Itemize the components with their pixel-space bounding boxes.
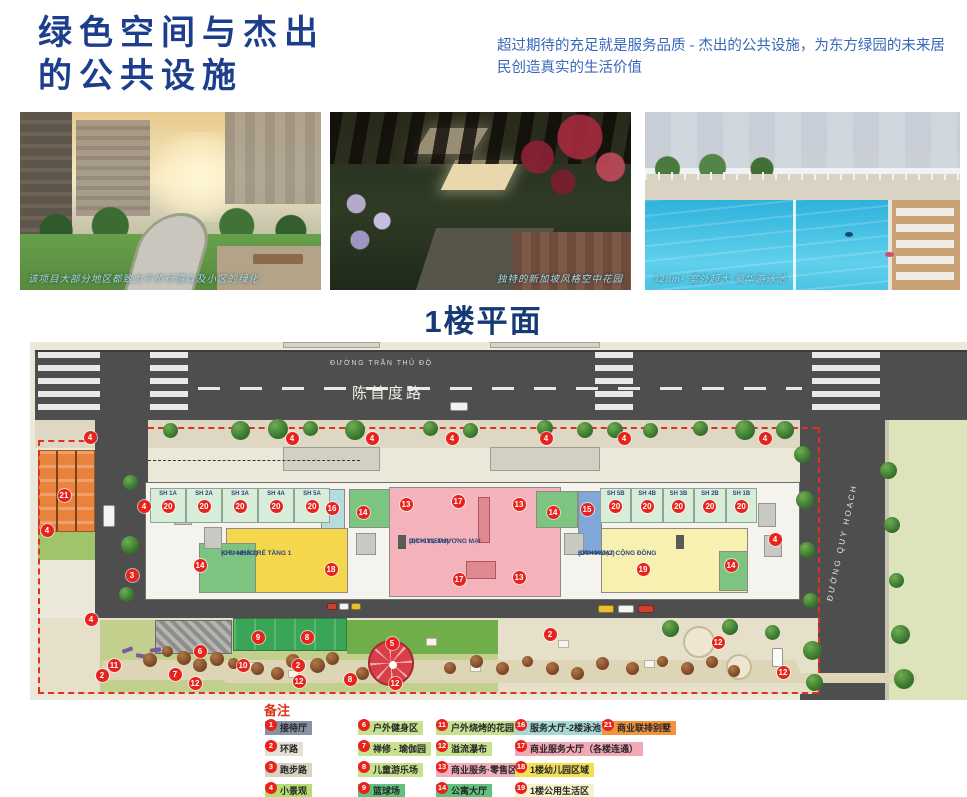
tree xyxy=(794,446,811,463)
legend-item-number: 6 xyxy=(358,719,370,731)
children-playground xyxy=(347,620,498,654)
legend-item-number: 21 xyxy=(602,719,614,731)
legend-item-label: 服务大厅-2楼泳池 xyxy=(515,721,606,735)
tree xyxy=(193,658,207,672)
plan-marker: 5 xyxy=(386,637,399,650)
plan-marker: 8 xyxy=(344,673,357,686)
tree xyxy=(626,662,639,675)
car xyxy=(450,402,468,411)
tree xyxy=(163,423,178,438)
photo2-bougainvillea xyxy=(461,112,631,212)
tree xyxy=(884,517,900,533)
car xyxy=(327,603,337,610)
plan-marker: 10 xyxy=(237,659,250,672)
photo-swimming-pool: 328m² 室外超大 豪华游泳池 xyxy=(645,112,960,290)
legend-item: 3跑步路 xyxy=(265,760,356,774)
car xyxy=(103,505,115,527)
floorplan-title: 1楼平面 xyxy=(0,296,967,341)
plan-marker: 4 xyxy=(618,432,631,445)
car xyxy=(598,605,614,613)
paving-square xyxy=(558,640,569,648)
tree xyxy=(706,656,718,668)
plan-marker: 4 xyxy=(759,432,772,445)
tree xyxy=(662,620,679,637)
tree xyxy=(735,420,755,440)
plan-marker: 17 xyxy=(452,495,465,508)
tree xyxy=(891,625,910,644)
tree xyxy=(577,422,593,438)
tree xyxy=(251,662,264,675)
site-boundary xyxy=(38,440,40,693)
street-name-vietnamese: ĐƯỜNG TRẦN THỦ ĐỘ xyxy=(330,360,433,367)
plan-marker: 20 xyxy=(703,500,716,513)
shophouse-unit: SH 1B20 xyxy=(726,488,757,523)
tree xyxy=(268,419,288,439)
tree xyxy=(345,420,365,440)
label-kindergarten-size: (DT=445M2) xyxy=(221,550,258,558)
shophouse-unit: SH 1A20 xyxy=(150,488,186,523)
tree xyxy=(463,423,478,438)
tree xyxy=(722,619,738,635)
tree xyxy=(803,593,818,608)
shophouse-unit: SH 5B20 xyxy=(600,488,631,523)
plan-marker: 15 xyxy=(581,503,594,516)
tree xyxy=(546,662,559,675)
legend-item-number: 19 xyxy=(515,782,527,794)
tree xyxy=(162,646,173,657)
tree xyxy=(894,669,914,689)
legend-item: 9篮球场 xyxy=(358,781,431,795)
tree xyxy=(796,491,814,509)
shophouse-unit: SH 2B20 xyxy=(694,488,725,523)
site-boundary xyxy=(38,692,818,694)
entrance-canopy xyxy=(490,447,600,471)
tree xyxy=(728,665,740,677)
tree xyxy=(177,651,191,665)
elevator xyxy=(398,535,406,549)
legend-item-number: 14 xyxy=(436,782,448,794)
legend-item-number: 1 xyxy=(265,719,277,731)
plan-marker: 12 xyxy=(712,636,725,649)
photo3-swimmer2 xyxy=(885,252,894,257)
plan-marker: 4 xyxy=(769,533,782,546)
shophouse-unit-label: SH 4A xyxy=(267,491,285,497)
legend-item-number: 7 xyxy=(358,740,370,752)
plan-marker: 12 xyxy=(189,677,202,690)
shophouse-unit-label: SH 5B xyxy=(607,491,625,497)
street-center-line xyxy=(198,387,802,390)
photo3-loungers xyxy=(896,208,954,282)
tree xyxy=(303,421,318,436)
legend-item-number: 12 xyxy=(436,740,448,752)
offsite-building xyxy=(283,342,380,348)
offsite-building xyxy=(490,342,600,348)
stair-core xyxy=(356,533,376,555)
photo3-railing xyxy=(645,172,960,180)
plan-marker: 6 xyxy=(194,645,207,658)
entrance-canopy xyxy=(283,447,380,471)
car xyxy=(618,605,634,613)
floorplan-map: ĐƯỜNG TRẦN THỦ ĐỘ 陈首度路 ĐƯỜNG QUY HOẠCH xyxy=(30,342,967,700)
shophouse-row-right: SH 5B20SH 4B20SH 3B20SH 2B20SH 1B20 xyxy=(600,488,757,523)
shophouse-unit-label: SH 2B xyxy=(701,491,719,497)
legend-item: 6户外健身区 xyxy=(358,718,431,732)
photo2-hydrangea xyxy=(334,178,408,264)
tree xyxy=(657,656,668,667)
shophouse-unit-label: SH 2A xyxy=(195,491,213,497)
tree xyxy=(356,667,369,680)
page-title: 绿色空间与杰出 的公共设施 xyxy=(38,12,325,97)
stair-core xyxy=(204,527,222,549)
photo1-building-mid xyxy=(76,120,150,216)
plan-marker: 7 xyxy=(169,668,182,681)
plan-marker: 2 xyxy=(292,659,305,672)
zone-apartment-lobby xyxy=(349,489,390,528)
plan-marker: 8 xyxy=(301,631,314,644)
tree xyxy=(776,421,794,439)
street-name-chinese: 陈首度路 xyxy=(352,382,424,403)
plan-marker: 20 xyxy=(270,500,283,513)
page-title-line1: 绿色空间与杰出 xyxy=(38,12,325,55)
tree xyxy=(799,542,815,558)
plan-marker: 12 xyxy=(777,666,790,679)
shophouse-unit: SH 3A20 xyxy=(222,488,258,523)
tree xyxy=(596,657,609,670)
tree xyxy=(271,667,284,680)
legend-item: 7禅修 - 瑜伽园 xyxy=(358,739,431,753)
setback-line xyxy=(148,460,360,461)
page-subtitle: 超过期待的充足就是服务品质 - 杰出的公共设施，为东方绿园的未来居民创造真实的生… xyxy=(497,36,959,80)
legend-item-number: 8 xyxy=(358,761,370,773)
paving-square xyxy=(426,638,437,646)
shophouse-unit: SH 4A20 xyxy=(258,488,294,523)
legend-item-number: 17 xyxy=(515,740,527,752)
legend-item-number: 9 xyxy=(358,782,370,794)
tree xyxy=(231,421,250,440)
plan-marker: 13 xyxy=(513,498,526,511)
legend-item-number: 11 xyxy=(436,719,448,731)
plan-marker: 14 xyxy=(547,506,560,519)
shophouse-unit-label: SH 3B xyxy=(670,491,688,497)
tree xyxy=(210,652,224,666)
tree xyxy=(444,662,456,674)
label-commercial-size: (DT=1135M2) xyxy=(409,538,449,546)
shophouse-unit-label: SH 5A xyxy=(303,491,321,497)
label-community-size: (DT=445M2) xyxy=(578,550,615,558)
stair-core xyxy=(758,503,776,527)
legend-item: 4小景观 xyxy=(265,781,356,795)
car xyxy=(638,605,654,613)
plan-marker: 4 xyxy=(366,432,379,445)
tree xyxy=(470,655,483,668)
tree xyxy=(803,641,822,660)
plan-marker: 20 xyxy=(198,500,211,513)
photo1-bench xyxy=(253,254,303,264)
plan-marker: 4 xyxy=(138,500,151,513)
plan-marker: 21 xyxy=(58,489,71,502)
plan-marker: 4 xyxy=(286,432,299,445)
plan-marker: 20 xyxy=(735,500,748,513)
photo3-caption: 328m² 室外超大 豪华游泳池 xyxy=(653,271,787,285)
plan-marker: 18 xyxy=(325,563,338,576)
legend-item: 21商业联排别墅 xyxy=(602,718,676,732)
legend-item-number: 3 xyxy=(265,761,277,773)
plan-marker: 20 xyxy=(641,500,654,513)
tree xyxy=(143,653,157,667)
legend-column: 1接待厅2环路3跑步路4小景观5景观小屋 - 咖啡厅 xyxy=(265,718,356,797)
crosswalk xyxy=(812,352,880,416)
plan-marker: 4 xyxy=(446,432,459,445)
plan-marker: 4 xyxy=(540,432,553,445)
garden-plaza xyxy=(683,626,715,658)
legend-item-number: 16 xyxy=(515,719,527,731)
elevator xyxy=(676,535,684,549)
plan-marker: 12 xyxy=(293,675,306,688)
tree xyxy=(765,625,780,640)
legend-item: 2环路 xyxy=(265,739,356,753)
photo1-caption: 该项目大部分地区都致力于步行道以及小区的绿化 xyxy=(28,271,259,285)
photo-sky-garden: 独特的新加坡风格空中花园 xyxy=(330,112,631,290)
tree xyxy=(310,658,325,673)
car xyxy=(339,603,349,610)
legend: 备注 1接待厅2环路3跑步路4小景观5景观小屋 - 咖啡厅6户外健身区7禅修 -… xyxy=(262,700,722,795)
shophouse-unit-label: SH 1B xyxy=(732,491,750,497)
plan-marker: 20 xyxy=(162,500,175,513)
plan-marker: 19 xyxy=(637,563,650,576)
plan-marker: 20 xyxy=(306,500,319,513)
plan-marker: 17 xyxy=(453,573,466,586)
brochure-page: 绿色空间与杰出 的公共设施 超过期待的充足就是服务品质 - 杰出的公共设施，为东… xyxy=(0,0,967,797)
shophouse-unit-label: SH 4B xyxy=(638,491,656,497)
crosswalk xyxy=(595,352,633,416)
crosswalk xyxy=(38,352,100,416)
plan-marker: 13 xyxy=(400,498,413,511)
legend-item-number: 18 xyxy=(515,761,527,773)
photo3-lane-line xyxy=(793,200,796,290)
tree xyxy=(522,656,533,667)
page-title-line2: 的公共设施 xyxy=(38,55,325,98)
legend-item: 191楼公用生活区 xyxy=(515,781,643,795)
plan-marker: 14 xyxy=(194,559,207,572)
legend-item-number: 4 xyxy=(265,782,277,794)
tree xyxy=(806,674,823,691)
tree xyxy=(643,423,658,438)
legend-item-number: 2 xyxy=(265,740,277,752)
van xyxy=(772,648,783,667)
photo3-swimmer xyxy=(845,232,853,237)
plan-marker: 20 xyxy=(234,500,247,513)
shophouse-unit: SH 2A20 xyxy=(186,488,222,523)
basketball-court xyxy=(233,618,347,651)
plan-marker: 20 xyxy=(672,500,685,513)
plan-marker: 11 xyxy=(108,659,121,672)
plan-marker: 4 xyxy=(41,524,54,537)
plan-marker: 3 xyxy=(126,569,139,582)
legend-column: 6户外健身区7禅修 - 瑜伽园8儿童游乐场9篮球场10休闲椅 xyxy=(358,718,431,797)
legend-title: 备注 xyxy=(264,700,290,719)
escalator xyxy=(478,497,490,543)
legend-item-label: 户外烧烤的花园 xyxy=(436,721,519,735)
plan-marker: 2 xyxy=(96,669,109,682)
tree xyxy=(496,662,509,675)
tree xyxy=(571,667,584,680)
legend-item-label: 商业服务大厅（各楼连通） xyxy=(515,742,643,756)
legend-item: 181楼幼儿园区域 xyxy=(515,760,643,774)
plan-marker: 13 xyxy=(513,571,526,584)
legend-column: 21商业联排别墅 xyxy=(602,718,676,739)
shophouse-row-left: SH 1A20SH 2A20SH 3A20SH 4A20SH 5A20 xyxy=(150,488,330,523)
tree xyxy=(119,587,134,602)
plan-marker: 14 xyxy=(725,559,738,572)
tree xyxy=(123,475,138,490)
paving-square xyxy=(644,660,655,668)
tree xyxy=(693,421,708,436)
legend-item-number: 13 xyxy=(436,761,448,773)
tree xyxy=(889,573,904,588)
plan-marker: 4 xyxy=(85,613,98,626)
legend-item: 8儿童游乐场 xyxy=(358,760,431,774)
legend-item: 1接待厅 xyxy=(265,718,356,732)
tree xyxy=(121,536,139,554)
plan-marker: 9 xyxy=(252,631,265,644)
escalator xyxy=(466,561,496,579)
photo-playground: 该项目大部分地区都致力于步行道以及小区的绿化 xyxy=(20,112,321,290)
legend-item: 17商业服务大厅（各楼连通） xyxy=(515,739,643,753)
shophouse-unit-label: SH 3A xyxy=(231,491,249,497)
tree xyxy=(681,662,694,675)
crosswalk xyxy=(150,352,188,416)
plan-marker: 16 xyxy=(326,502,339,515)
tree xyxy=(326,652,339,665)
plan-marker: 12 xyxy=(389,677,402,690)
photo1-building-right xyxy=(225,112,321,204)
tree xyxy=(423,421,438,436)
plan-marker: 2 xyxy=(544,628,557,641)
photo2-caption: 独特的新加坡风格空中花园 xyxy=(497,271,623,285)
shophouse-unit: SH 5A20 xyxy=(294,488,330,523)
plan-marker: 20 xyxy=(609,500,622,513)
shophouse-unit: SH 3B20 xyxy=(663,488,694,523)
shophouse-unit-label: SH 1A xyxy=(159,491,177,497)
car xyxy=(351,603,361,610)
roadside-grass xyxy=(885,420,967,700)
tree xyxy=(880,462,897,479)
plan-marker: 14 xyxy=(357,506,370,519)
plan-marker: 4 xyxy=(84,431,97,444)
shophouse-unit: SH 4B20 xyxy=(631,488,662,523)
